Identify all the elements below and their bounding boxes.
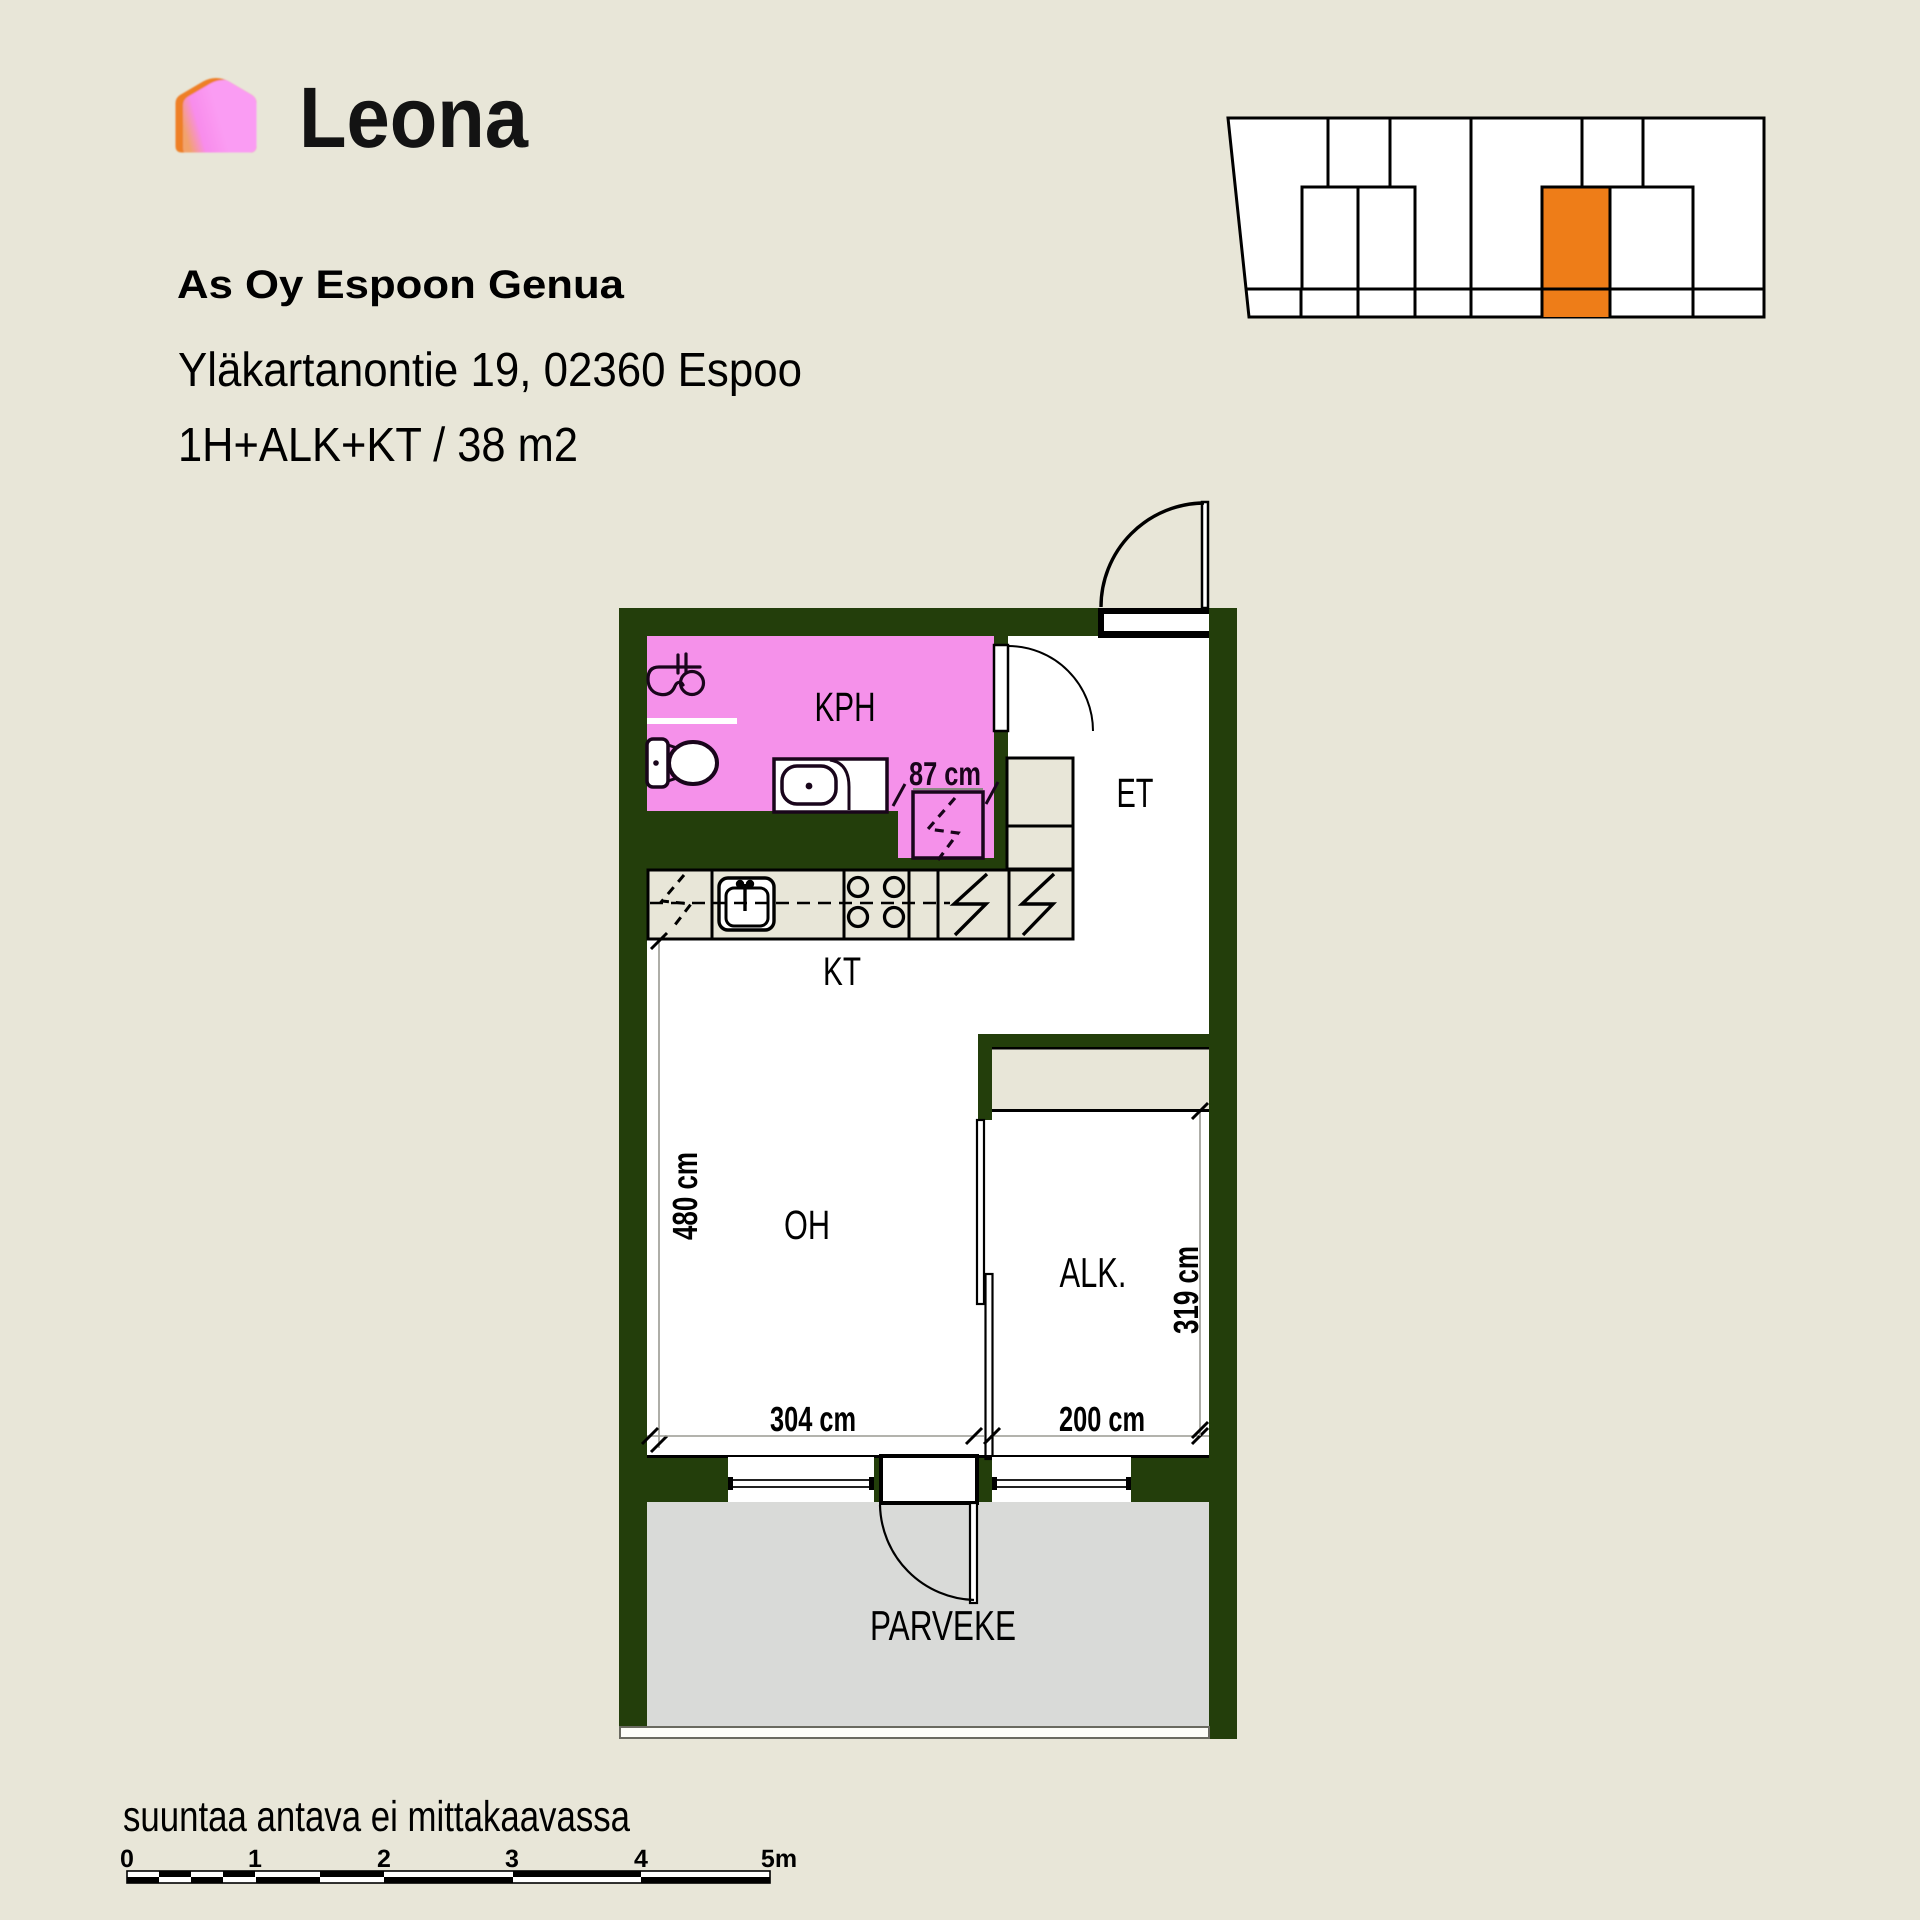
svg-text:KT: KT (823, 950, 861, 994)
svg-text:Leona: Leona (299, 70, 529, 166)
svg-text:319 cm: 319 cm (1167, 1246, 1206, 1334)
svg-text:Yläkartanontie 19, 02360 Espoo: Yläkartanontie 19, 02360 Espoo (178, 344, 802, 397)
svg-text:1: 1 (248, 1845, 262, 1873)
svg-text:1H+ALK+KT / 38 m2: 1H+ALK+KT / 38 m2 (178, 419, 578, 472)
svg-text:480 cm: 480 cm (666, 1152, 705, 1240)
svg-text:ET: ET (1117, 770, 1154, 816)
svg-text:ALK.: ALK. (1060, 1249, 1127, 1296)
svg-text:3: 3 (505, 1845, 519, 1873)
svg-text:2: 2 (377, 1845, 391, 1873)
svg-text:suuntaa antava ei mittakaavass: suuntaa antava ei mittakaavassa (123, 1793, 630, 1841)
svg-text:PARVEKE: PARVEKE (870, 1602, 1016, 1649)
svg-text:5m: 5m (761, 1845, 797, 1873)
svg-text:As Oy Espoon Genua: As Oy Espoon Genua (177, 263, 625, 307)
svg-text:OH: OH (784, 1202, 830, 1248)
svg-text:87 cm: 87 cm (909, 755, 981, 792)
svg-text:200 cm: 200 cm (1059, 1400, 1145, 1439)
svg-text:4: 4 (634, 1845, 648, 1873)
svg-text:0: 0 (120, 1845, 134, 1873)
svg-text:304 cm: 304 cm (770, 1400, 856, 1439)
svg-text:KPH: KPH (815, 684, 876, 730)
